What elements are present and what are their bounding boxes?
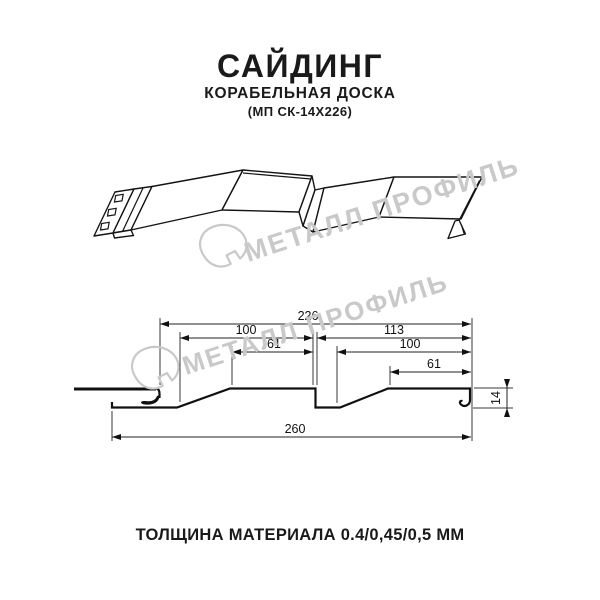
technical-drawing-canvas: 226 100 113 61 100 61 260 14 МЕТАЛЛ ПРОФ…: [0, 0, 600, 600]
dim-label-260: 260: [285, 422, 306, 436]
dim-label-113: 113: [384, 323, 404, 337]
metal-profile-logo-icon: [198, 222, 250, 269]
dim-label-61-right: 61: [427, 357, 441, 371]
section-profile-outline: [112, 389, 470, 408]
dim-label-14: 14: [489, 391, 503, 405]
product-drawing-page: САЙДИНГ КОРАБЕЛЬНАЯ ДОСКА (МП СК-14Х226): [0, 0, 600, 600]
dim-label-100-right: 100: [400, 337, 421, 351]
section-lock-curl: [141, 395, 159, 405]
slope-panel-1: [131, 170, 243, 230]
metal-profile-logo-icon: [130, 344, 182, 391]
material-thickness-note: ТОЛЩИНА МАТЕРИАЛА 0.4/0,45/0,5 ММ: [0, 526, 600, 545]
